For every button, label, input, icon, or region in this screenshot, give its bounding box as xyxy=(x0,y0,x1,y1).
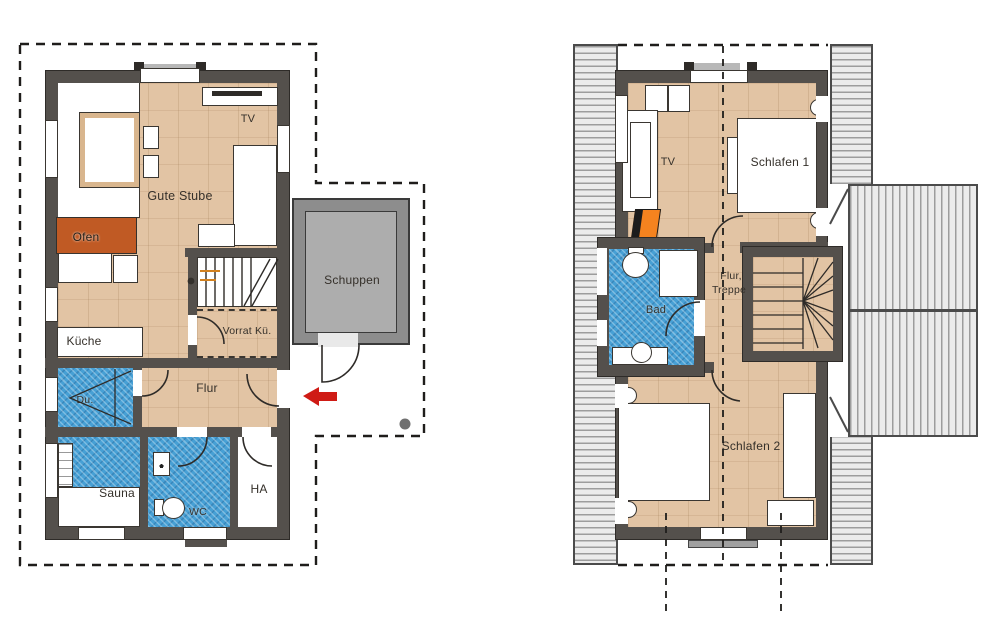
window xyxy=(597,320,607,346)
window-sill-cap xyxy=(747,62,757,71)
room-label-flur-line1: Flur, xyxy=(720,270,741,282)
toilet-bowl xyxy=(162,497,185,519)
floorplan-canvas: Gute Stube TV Ofen Küche Du. Sauna WC HA… xyxy=(0,0,1000,631)
door-gap xyxy=(133,370,142,396)
window xyxy=(615,498,628,524)
wardrobe xyxy=(783,393,816,498)
wall-segment xyxy=(705,362,714,373)
room-label-schuppen: Schuppen xyxy=(324,273,380,287)
toilet-bowl xyxy=(622,252,649,278)
washbasin xyxy=(631,342,652,363)
room-label-flur-line2: Treppe xyxy=(712,284,746,296)
shed-roof-ridge xyxy=(848,309,978,312)
shower-room xyxy=(58,368,133,427)
door-gap xyxy=(694,300,705,336)
stair-floor xyxy=(753,257,833,351)
room-label-ha: HA xyxy=(250,482,267,496)
cupboard xyxy=(198,224,235,247)
room-label-wc: WC xyxy=(189,506,207,518)
room-label-dusche: Du. xyxy=(77,394,94,406)
window xyxy=(183,527,227,540)
balcony-marking xyxy=(688,540,758,548)
room-label-tv: TV xyxy=(241,113,255,125)
chair xyxy=(143,126,159,149)
window xyxy=(816,208,828,236)
sauna-bench-side xyxy=(58,443,73,487)
shed-door-gap xyxy=(318,333,358,347)
dining-table xyxy=(79,112,140,188)
shed-floor xyxy=(305,211,397,333)
room-label-schlafen1: Schlafen 1 xyxy=(751,155,810,169)
window xyxy=(816,96,828,122)
wall-segment xyxy=(230,437,238,527)
room-label-tv: TV xyxy=(661,156,675,168)
window xyxy=(615,95,628,163)
entrance-door-gap xyxy=(277,370,290,408)
window xyxy=(597,248,607,295)
cabinet xyxy=(668,85,690,112)
door-gap xyxy=(188,315,197,345)
bedside-table xyxy=(727,137,738,194)
window xyxy=(78,527,125,540)
tv-set xyxy=(212,91,262,96)
window xyxy=(277,125,290,173)
bench xyxy=(233,145,277,246)
door-arc xyxy=(322,345,359,382)
window xyxy=(700,527,747,540)
wall-segment xyxy=(185,248,277,257)
bed xyxy=(618,403,710,501)
chimney xyxy=(631,209,661,239)
chair xyxy=(143,155,159,178)
tv-sideboard xyxy=(202,87,278,106)
window-sill xyxy=(185,540,227,547)
door-gap xyxy=(242,427,271,437)
room-label-schlafen2: Schlafen 2 xyxy=(722,439,781,453)
room-label-kueche: Küche xyxy=(66,334,101,348)
counter xyxy=(113,255,138,283)
room-label-ofen: Ofen xyxy=(73,230,100,244)
cabinet xyxy=(645,85,668,112)
window xyxy=(45,443,58,498)
window xyxy=(45,377,58,412)
counter xyxy=(58,253,112,283)
window xyxy=(45,287,58,322)
window xyxy=(690,70,748,83)
door-gap xyxy=(177,427,207,437)
window xyxy=(615,384,628,408)
entrance-arrow xyxy=(303,387,337,406)
room-label-sauna: Sauna xyxy=(99,486,135,500)
room-label-bad: Bad xyxy=(646,304,666,316)
sofa-seat xyxy=(630,122,651,198)
room-label-gute-stube: Gute Stube xyxy=(147,189,212,203)
dresser xyxy=(767,500,814,526)
shower xyxy=(659,250,698,297)
room-label-vorrat: Vorrat Kü. xyxy=(223,325,272,337)
window xyxy=(140,68,200,83)
wall-segment xyxy=(140,437,148,527)
wall-segment xyxy=(45,358,277,368)
window xyxy=(45,120,58,178)
staircase xyxy=(197,257,277,307)
site-marker-dot xyxy=(400,419,411,430)
room-label-flur: Flur xyxy=(196,381,217,395)
wc-sink xyxy=(153,452,170,476)
